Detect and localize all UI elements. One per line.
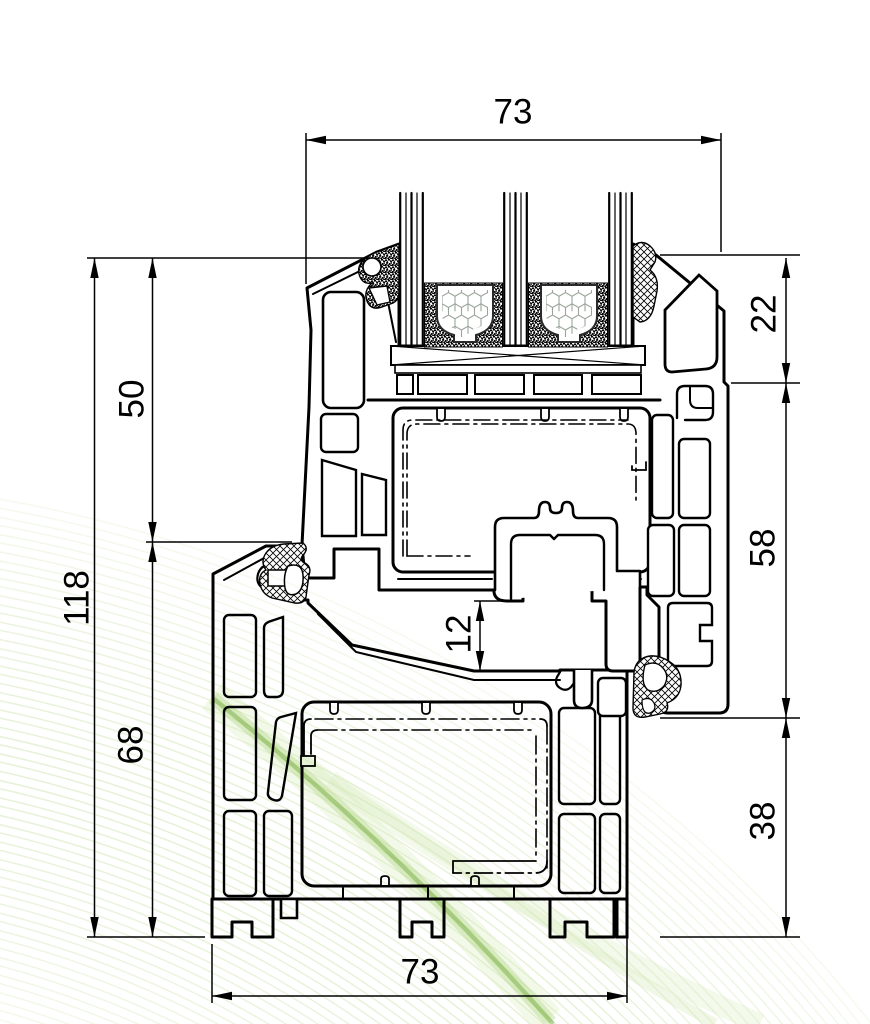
- svg-text:50: 50: [112, 380, 151, 419]
- svg-text:22: 22: [744, 295, 783, 334]
- svg-text:58: 58: [743, 529, 782, 568]
- svg-text:12: 12: [439, 615, 478, 654]
- svg-text:73: 73: [494, 92, 533, 131]
- svg-text:38: 38: [743, 802, 782, 841]
